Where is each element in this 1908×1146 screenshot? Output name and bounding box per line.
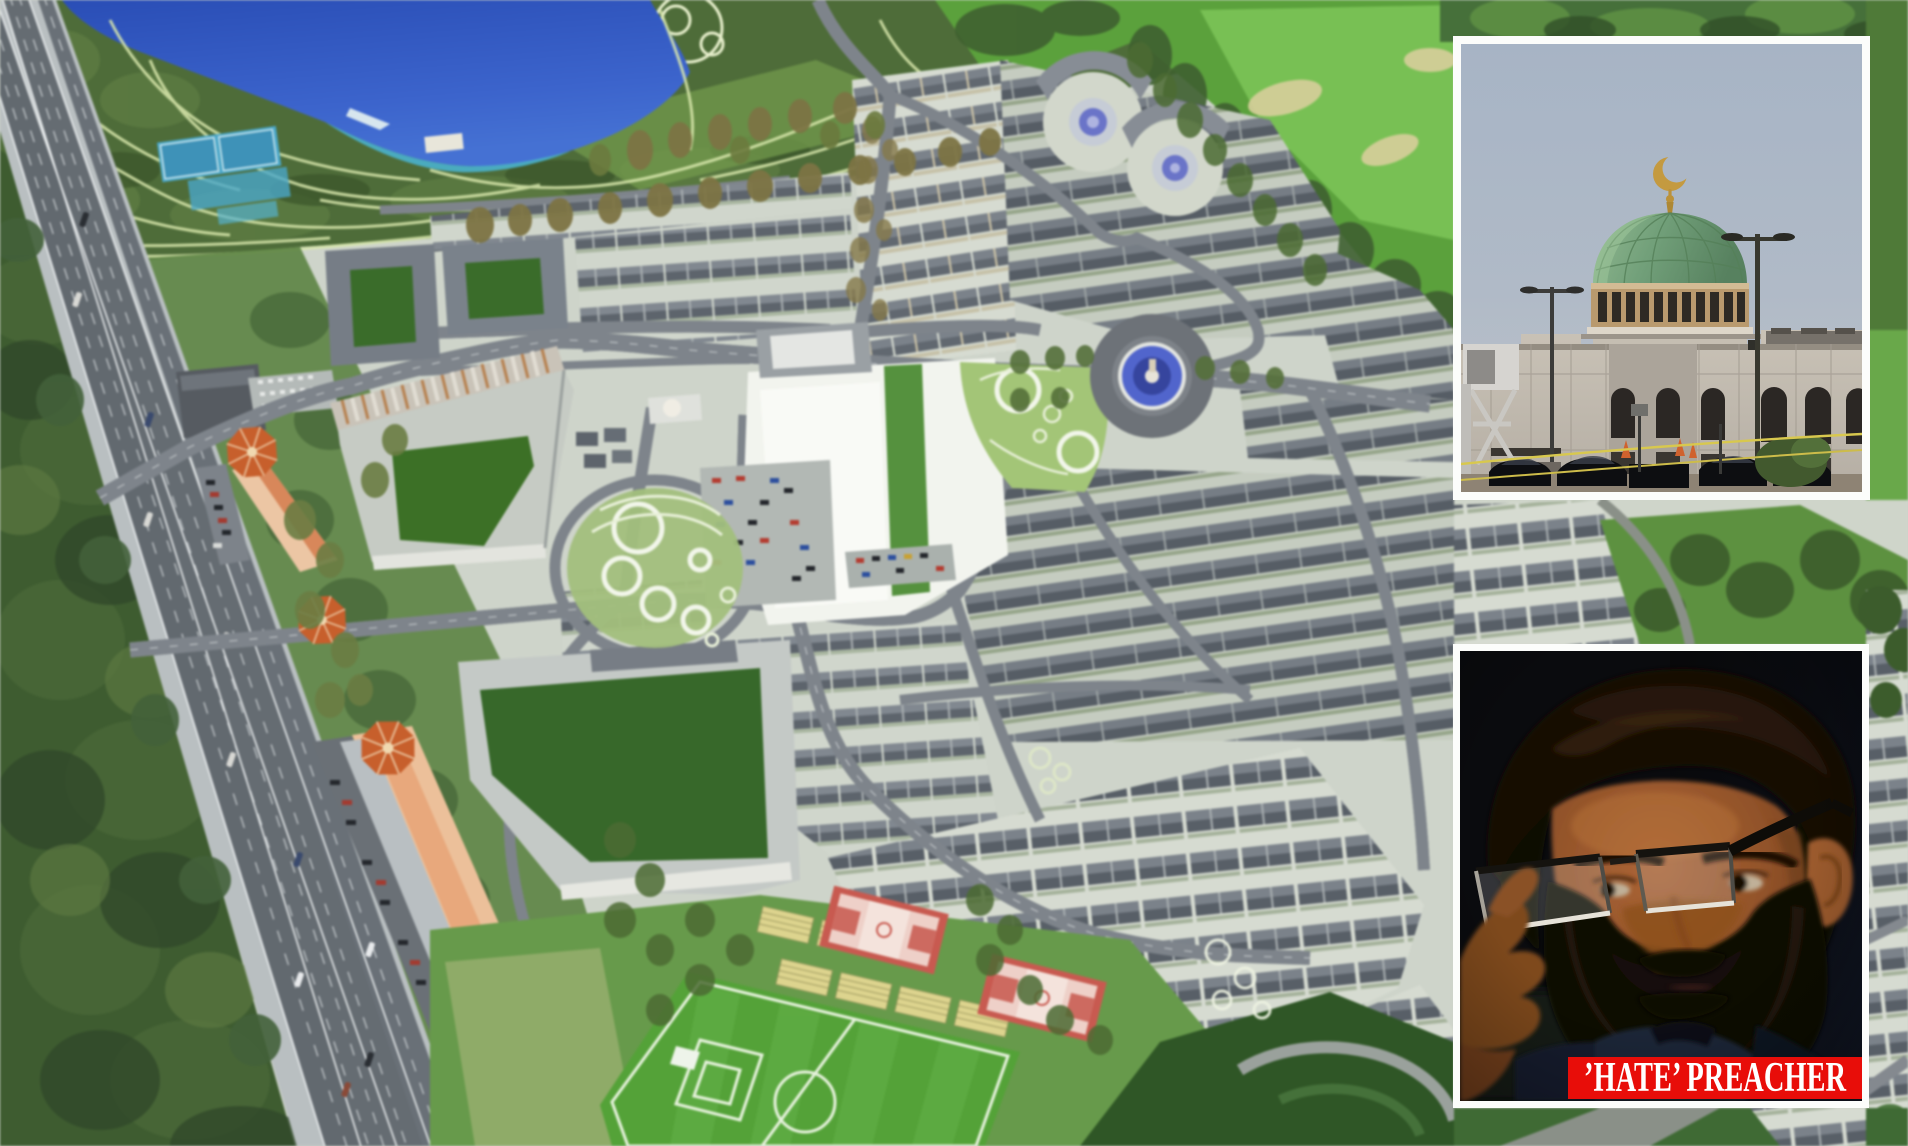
svg-text:’HATE’ PREACHER: ’HATE’ PREACHER	[1584, 1055, 1846, 1101]
